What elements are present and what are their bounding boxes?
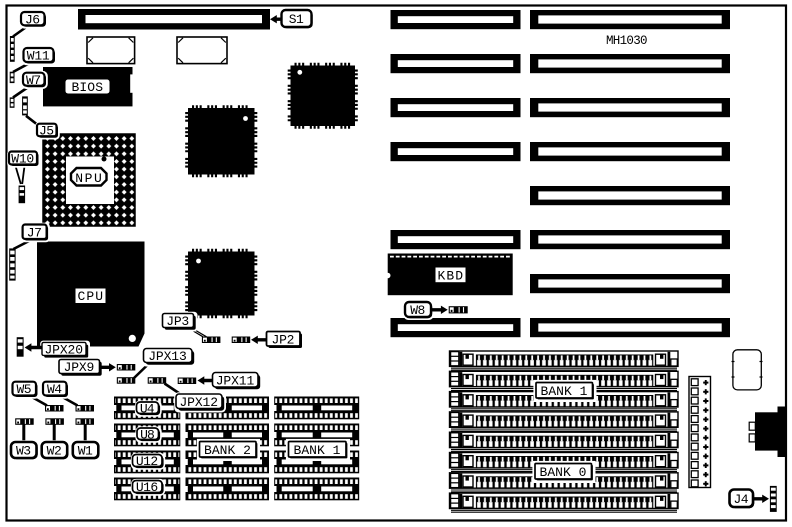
svg-text:NPU: NPU xyxy=(75,171,102,186)
svg-text:J6: J6 xyxy=(25,12,41,27)
svg-text:W2: W2 xyxy=(47,444,63,459)
svg-text:CPU: CPU xyxy=(78,289,104,304)
svg-text:JPX11: JPX11 xyxy=(216,373,255,388)
svg-text:S1: S1 xyxy=(289,12,305,27)
svg-text:W7: W7 xyxy=(26,73,42,88)
svg-text:JPX20: JPX20 xyxy=(45,343,84,358)
svg-text:J7: J7 xyxy=(27,225,43,240)
svg-text:JP3: JP3 xyxy=(166,314,189,329)
svg-text:W8: W8 xyxy=(410,303,426,318)
svg-text:BANK 1: BANK 1 xyxy=(294,443,341,458)
svg-text:W10: W10 xyxy=(11,152,34,167)
svg-text:BANK 2: BANK 2 xyxy=(204,443,251,458)
svg-text:W5: W5 xyxy=(16,382,32,397)
svg-text:U16: U16 xyxy=(136,480,159,495)
svg-text:MH1030: MH1030 xyxy=(606,34,648,48)
svg-text:W1: W1 xyxy=(78,444,94,459)
svg-text:BANK 0: BANK 0 xyxy=(540,465,587,480)
svg-text:JPX9: JPX9 xyxy=(64,360,95,375)
svg-text:JP2: JP2 xyxy=(272,332,295,347)
svg-text:J4: J4 xyxy=(733,492,749,507)
svg-text:JPX12: JPX12 xyxy=(180,395,219,410)
svg-text:JPX13: JPX13 xyxy=(148,349,187,364)
svg-text:U4: U4 xyxy=(140,401,155,416)
svg-text:U12: U12 xyxy=(136,454,159,469)
svg-text:W4: W4 xyxy=(47,382,63,397)
svg-text:W11: W11 xyxy=(27,49,50,64)
svg-text:BIOS: BIOS xyxy=(72,80,104,95)
svg-text:BANK 1: BANK 1 xyxy=(541,384,588,399)
svg-text:W3: W3 xyxy=(16,444,32,459)
svg-text:U8: U8 xyxy=(140,427,155,442)
svg-text:KBD: KBD xyxy=(438,268,464,283)
svg-text:J5: J5 xyxy=(39,124,55,139)
